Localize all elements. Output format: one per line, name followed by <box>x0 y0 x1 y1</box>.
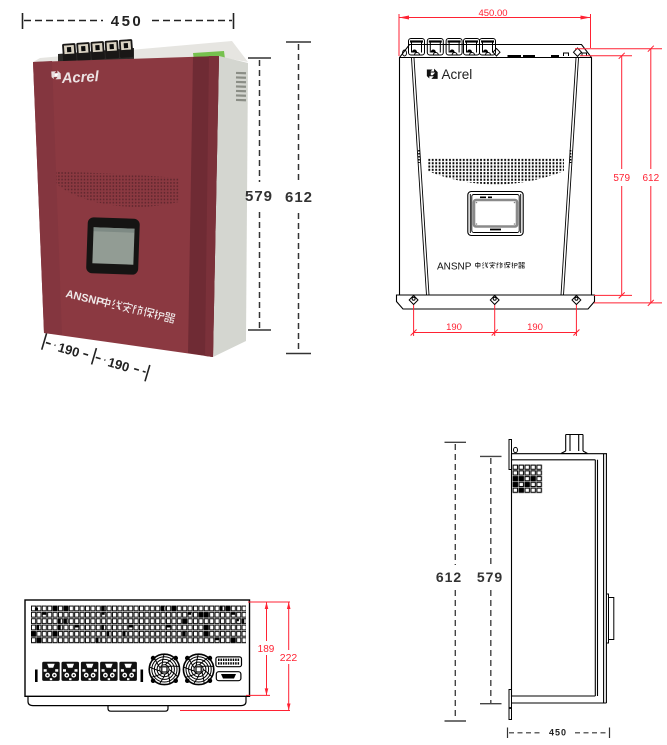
svg-text:579: 579 <box>245 188 273 205</box>
svg-text:579: 579 <box>613 173 630 184</box>
svg-text:Acrel: Acrel <box>60 69 100 87</box>
svg-text:190: 190 <box>527 322 543 333</box>
svg-text:450.00: 450.00 <box>478 8 507 19</box>
svg-text:189: 189 <box>258 644 275 655</box>
svg-text:612: 612 <box>436 569 462 585</box>
svg-text:190: 190 <box>446 322 462 333</box>
svg-text:190: 190 <box>56 340 81 361</box>
svg-text:Acrel: Acrel <box>442 67 473 82</box>
svg-text:612: 612 <box>642 173 659 184</box>
svg-text:450: 450 <box>111 13 144 30</box>
svg-text:ANSNP: ANSNP <box>437 262 472 273</box>
svg-text:222: 222 <box>280 652 298 664</box>
svg-text:579: 579 <box>477 569 503 585</box>
svg-text:612: 612 <box>285 189 313 206</box>
svg-text:450: 450 <box>549 728 567 738</box>
svg-text:190: 190 <box>106 354 131 375</box>
